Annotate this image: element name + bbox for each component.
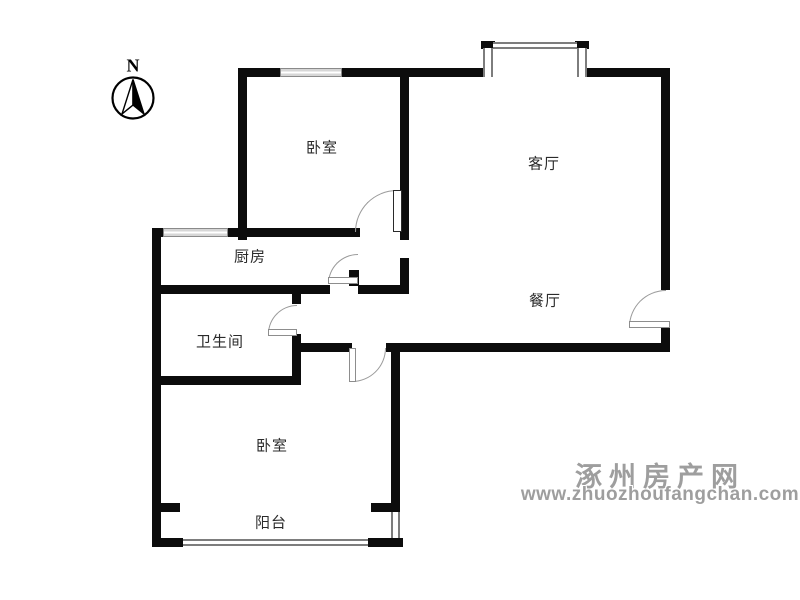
window-kitchen <box>163 228 228 237</box>
wall-segment <box>400 258 409 294</box>
wall-segment <box>661 327 670 352</box>
wall-segment <box>368 538 403 547</box>
wall-segment <box>292 290 301 304</box>
door-arc-bedroom-bottom <box>352 348 386 382</box>
wall-segment <box>661 68 670 290</box>
door-arc-bedroom-top <box>355 190 397 232</box>
door-leaf-bedroom-bottom <box>349 348 356 382</box>
wall-segment <box>292 343 352 352</box>
window-bedroom-top <box>280 68 342 77</box>
wall-segment <box>386 343 670 352</box>
watermark-site-url: www.zhuozhoufangchan.com <box>521 484 799 506</box>
door-leaf-bedroom-top <box>393 190 402 232</box>
room-label-bedroom-bottom: 卧室 <box>256 435 288 456</box>
window-balcony-front <box>183 539 368 546</box>
wall-segment <box>587 68 670 77</box>
door-leaf-kitchen <box>328 277 358 284</box>
window-bay-top <box>493 42 577 49</box>
room-label-living-room: 客厅 <box>528 153 560 174</box>
room-label-dining-room: 餐厅 <box>529 290 561 311</box>
wall-segment <box>152 538 183 547</box>
wall-segment <box>391 343 400 512</box>
door-leaf-bathroom <box>268 329 297 336</box>
compass-icon <box>110 75 156 121</box>
window-bay-right <box>577 48 587 77</box>
compass-north-label: N <box>127 56 140 77</box>
window-bay-left <box>483 48 493 77</box>
wall-segment <box>238 68 247 240</box>
wall-segment <box>152 376 301 385</box>
window-balcony-side <box>391 512 400 538</box>
wall-segment <box>152 385 161 547</box>
wall-segment <box>238 68 483 77</box>
wall-segment <box>238 228 360 237</box>
room-label-bathroom: 卫生间 <box>196 331 244 352</box>
wall-segment <box>152 285 330 294</box>
wall-segment <box>152 503 180 512</box>
room-label-balcony: 阳台 <box>255 512 287 533</box>
wall-segment <box>152 228 161 385</box>
door-leaf-entry <box>629 321 670 328</box>
floorplan-canvas: N <box>0 0 800 600</box>
wall-segment <box>371 503 400 512</box>
room-label-bedroom-top: 卧室 <box>306 137 338 158</box>
room-label-kitchen: 厨房 <box>234 246 266 267</box>
